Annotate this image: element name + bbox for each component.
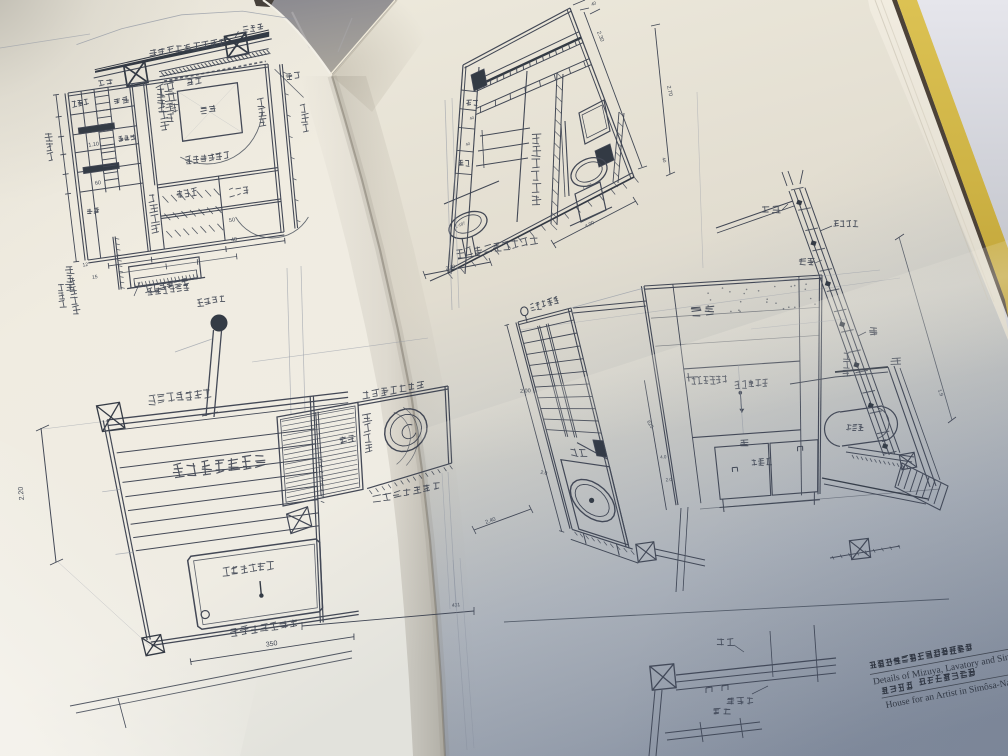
svg-text:12: 12 [82, 262, 89, 269]
svg-text:50: 50 [229, 217, 236, 224]
svg-text:60: 60 [95, 180, 102, 187]
svg-text:40: 40 [231, 237, 238, 244]
svg-text:15: 15 [92, 274, 99, 281]
svg-text:2.20: 2.20 [18, 486, 26, 500]
